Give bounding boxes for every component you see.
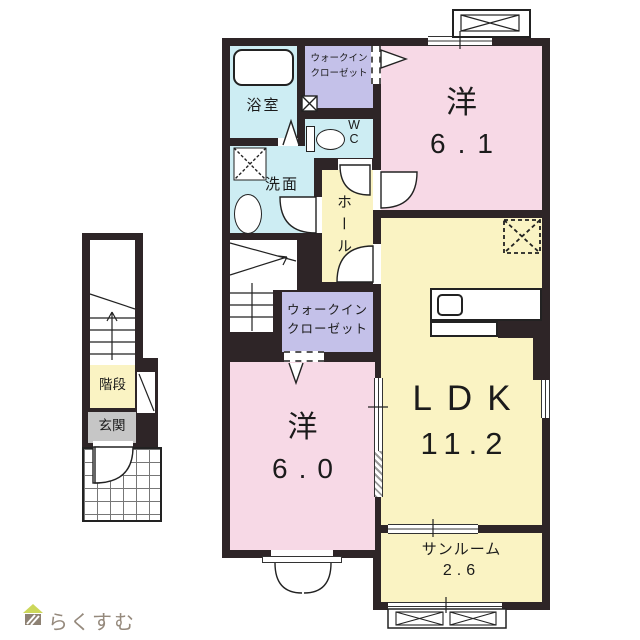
window-ldk-right [541,380,550,418]
door-gap-hall-ldk [373,244,381,284]
western-6-0-size: 6.0 [230,452,375,486]
stairwell-stairs-area [90,240,135,365]
bathtub-icon [233,49,294,86]
wc-label-line1: W [348,118,360,132]
floorplan: 浴室 洗面 W C ホール ウォークイン クローゼット ウォークイン クローゼッ… [0,0,640,640]
wic-lower-line2: クローゼット [287,322,368,336]
porch-tiles [82,447,162,522]
door-gap-bath [278,138,298,146]
folding-door-wic-lower [284,351,324,362]
wall-pillar [533,330,550,380]
ac-unit-icon [388,609,506,628]
western-6-1-label: 洋 [381,84,542,121]
hall-label: ホール [334,172,352,282]
wic-lower-line1: ウォークイン [287,303,368,317]
kitchen-sink-icon [437,294,463,316]
logo-house-icon [22,603,44,627]
ldk-size: 11.2 [381,425,542,462]
door-gap-washroom [314,197,322,233]
main-stairs-lower [230,290,273,332]
french-door-arc-left [275,563,302,593]
french-door-frame [262,556,342,563]
wic-upper-line2: クローゼット [310,68,367,79]
toilet-tank-icon [306,126,315,152]
bath-label: 浴室 [230,97,297,115]
stairs-label: 階段 [90,377,135,393]
shoe-closet [137,372,155,413]
kitchen-counter-lower [430,321,498,337]
western-6-0-label: 洋 [230,410,375,446]
sunroom-size: 2.6 [381,561,542,580]
wc-label-line2: C [349,132,358,146]
entrance-label: 玄関 [88,418,136,434]
door-gap-hall-western61 [373,170,381,210]
window-sunroom-bottom [388,602,502,611]
western-6-1-size: 6.1 [381,127,542,161]
wic-upper-label: ウォークイン クローゼット [305,52,373,81]
sunroom-label: サンルーム [381,541,542,559]
balcony-icon [453,10,530,37]
window-western-6-1-top [428,36,492,46]
french-door-arc-right [304,563,331,593]
window-ldk-sunroom [388,524,478,534]
washroom-label: 洗面 [245,176,319,194]
logo-text: らくすむ [48,606,136,635]
wc-label: W C [341,118,367,147]
sink-icon [234,194,262,234]
wic-lower-label: ウォークイン クローゼット [282,301,373,339]
room-ldk [381,218,542,525]
ldk-label: LDK [381,378,542,420]
main-stairs-upper [230,240,297,290]
door-gap-wc [338,159,372,170]
wic-upper-line1: ウォークイン [310,53,367,64]
door-gap-entrance [93,441,133,448]
